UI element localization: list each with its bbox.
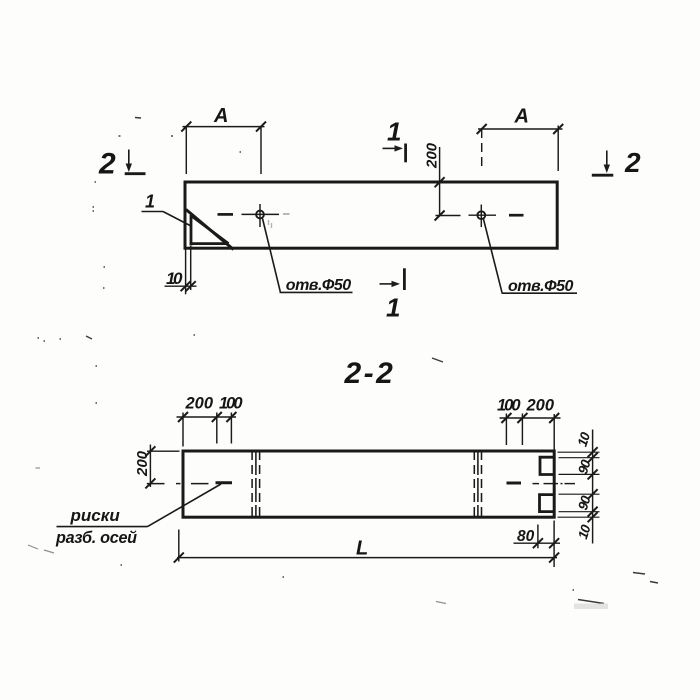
svg-text:2: 2 [98, 148, 116, 181]
svg-text:100: 100 [497, 397, 521, 415]
svg-text:A: A [514, 106, 529, 128]
svg-text:1: 1 [386, 293, 400, 323]
svg-text:200: 200 [423, 142, 440, 169]
svg-text:200: 200 [185, 395, 214, 413]
svg-text:A: A [213, 105, 228, 127]
svg-text:2-2: 2-2 [344, 357, 396, 390]
svg-text:отв.Ф50: отв.Ф50 [508, 278, 574, 295]
svg-text:200: 200 [134, 450, 151, 477]
svg-text:отв.Ф50: отв.Ф50 [286, 277, 352, 294]
svg-text:L: L [356, 538, 368, 560]
svg-text:2: 2 [624, 147, 641, 178]
svg-text:80: 80 [517, 528, 535, 545]
svg-text:риски: риски [70, 506, 121, 525]
svg-text:1: 1 [387, 117, 401, 147]
svg-text:200: 200 [526, 397, 555, 415]
svg-text:100: 100 [219, 395, 243, 413]
svg-text:1: 1 [145, 192, 155, 212]
svg-text:разб. осей: разб. осей [55, 529, 137, 547]
